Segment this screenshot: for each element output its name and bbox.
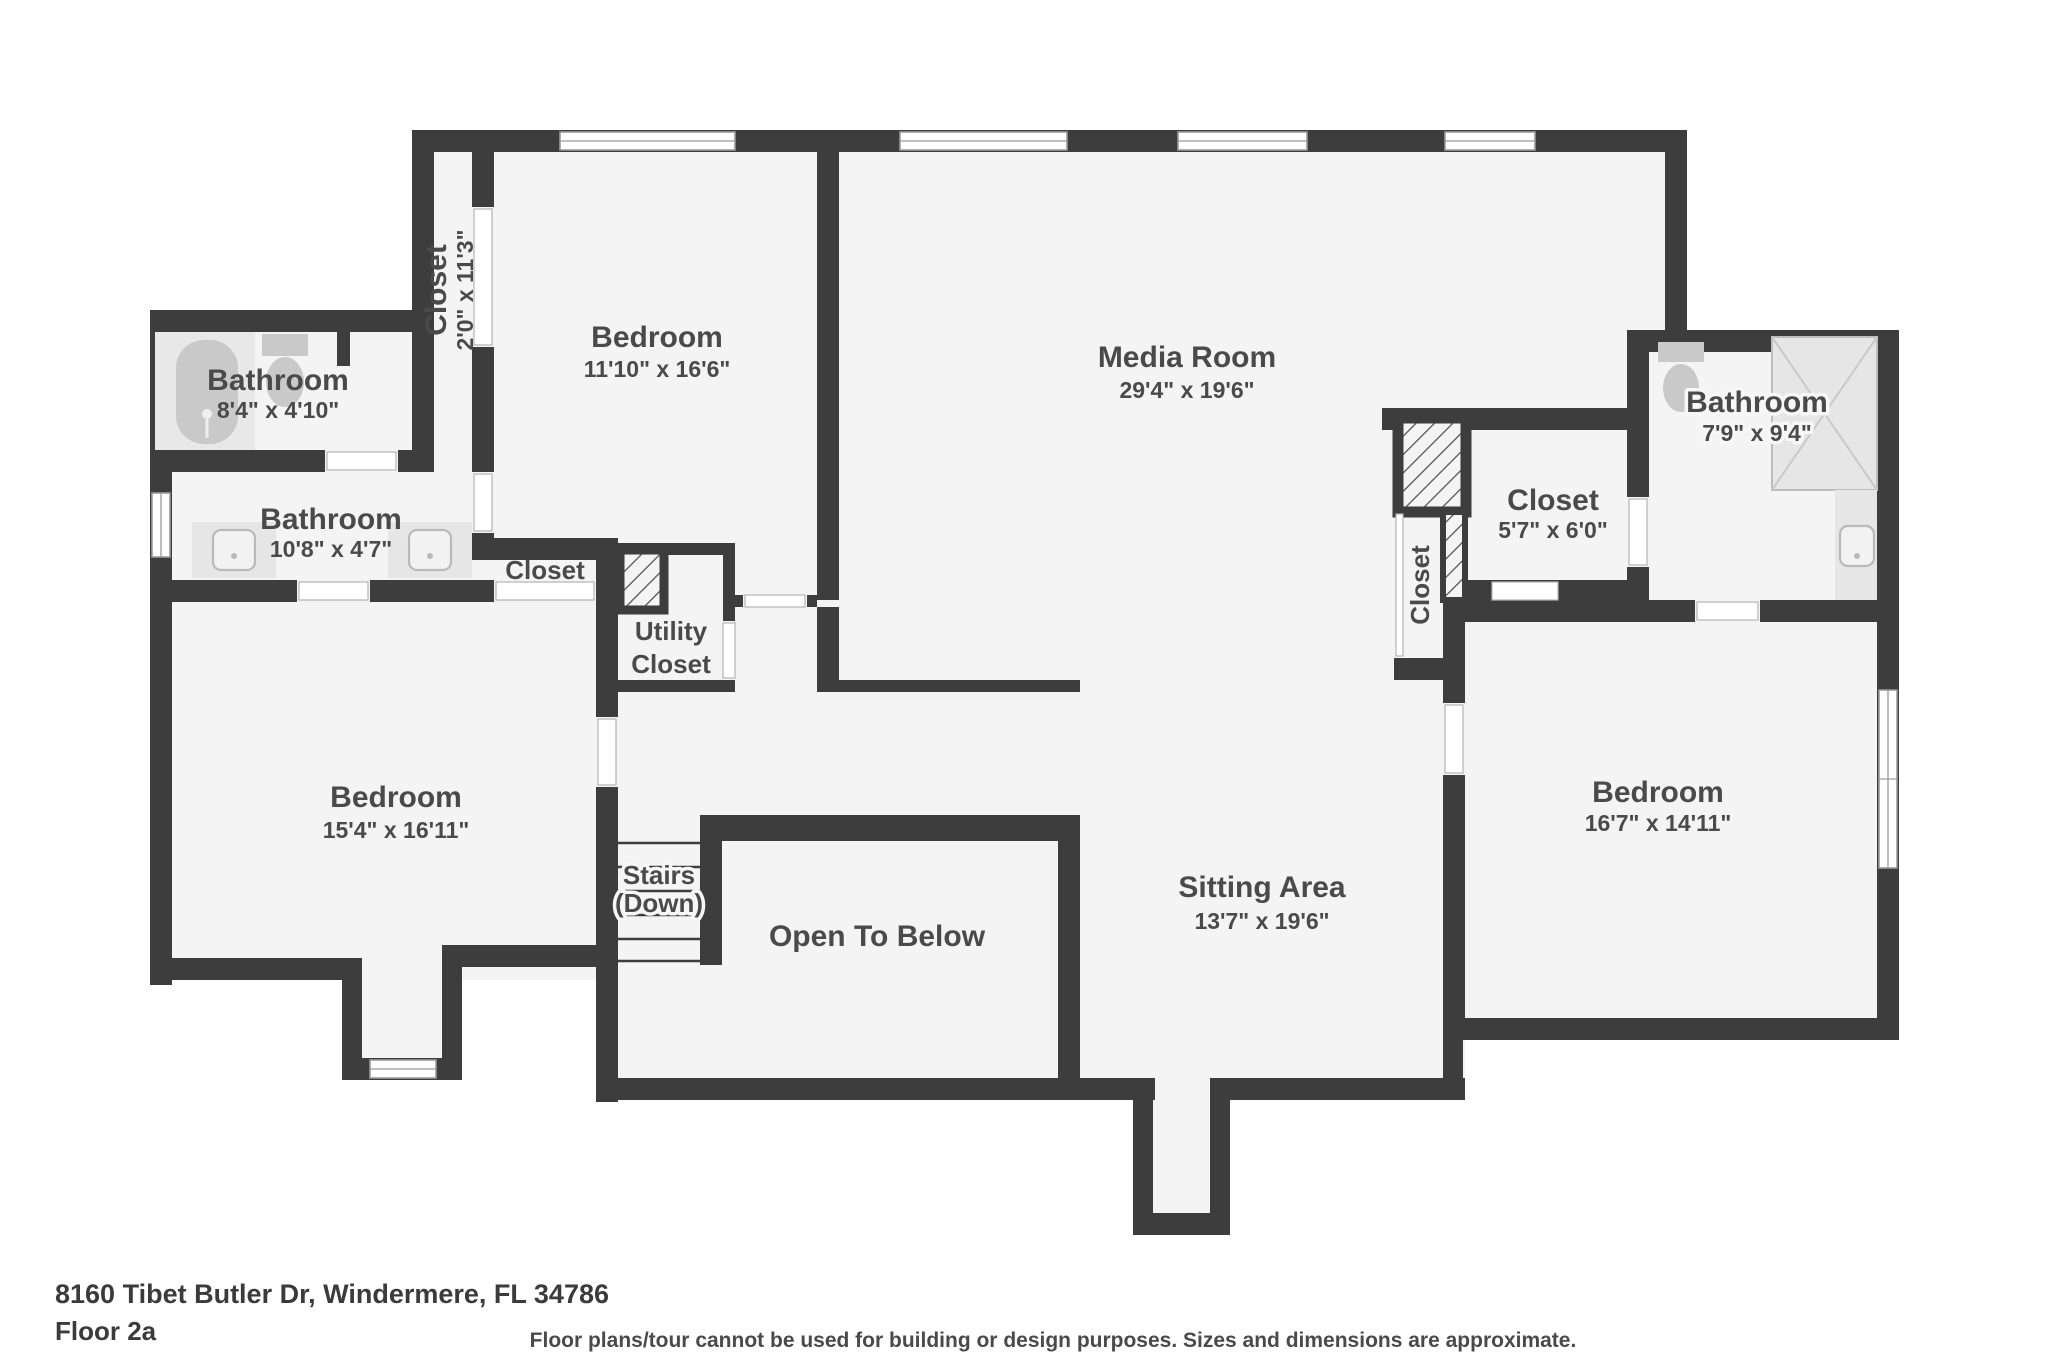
footer: 8160 Tibet Butler Dr, Windermere, FL 347… (55, 1279, 1576, 1352)
room-label-media-room: Media Room (1098, 341, 1276, 374)
chase-right-strip (1443, 512, 1465, 600)
tub-drain-icon (202, 409, 212, 419)
toilet-tank-icon (262, 334, 308, 356)
room-label-closet-small: Closet (505, 555, 585, 585)
toilet-tank-icon-right (1658, 342, 1704, 362)
room-dims-bedroom-top: 11'10" x 16'6" (584, 356, 731, 382)
footer-address: 8160 Tibet Butler Dr, Windermere, FL 347… (55, 1279, 609, 1309)
room-dims-bedroom-left: 15'4" x 16'11" (323, 817, 470, 843)
room-label-bathroom-top-left: Bathroom (207, 364, 349, 397)
sink-icon-2 (409, 530, 451, 570)
sink-icon-right (1840, 526, 1874, 566)
chase-utility (620, 550, 664, 610)
room-label-bathroom-left: Bathroom (260, 503, 402, 536)
room-dims-bathroom-top-left: 8'4" x 4'10" (217, 397, 339, 423)
floor-plan-canvas: Bathroom 8'4" x 4'10" Closet 2'0" x 11'3… (0, 0, 2048, 1365)
room-dims-sitting-area: 13'7" x 19'6" (1194, 908, 1329, 934)
room-label-open-to-below: Open To Below (769, 920, 986, 953)
chase-right-large (1398, 418, 1466, 512)
room-label-stairs-line1: Stairs (623, 860, 695, 890)
room-label-bedroom-right: Bedroom (1592, 776, 1724, 809)
room-label-closet-vertical: Closet (1405, 545, 1435, 625)
room-label-utility-line2: Closet (631, 649, 711, 679)
room-label-closet-right: Closet (1507, 484, 1599, 517)
room-dims-closet-right: 5'7" x 6'0" (1498, 517, 1608, 543)
sink-icon-1 (213, 530, 255, 570)
room-label-sitting-area: Sitting Area (1178, 871, 1346, 904)
room-dims-bedroom-right: 16'7" x 14'11" (1585, 810, 1732, 836)
footer-disclaimer: Floor plans/tour cannot be used for buil… (530, 1329, 1577, 1352)
room-label-bedroom-top: Bedroom (591, 321, 723, 354)
room-label-closet-tall: Closet (420, 244, 453, 336)
floor-plan-page: Bathroom 8'4" x 4'10" Closet 2'0" x 11'3… (0, 0, 2048, 1365)
room-dims-closet-tall: 2'0" x 11'3" (452, 229, 478, 350)
footer-floor-label: Floor 2a (55, 1316, 157, 1346)
room-label-stairs-line2: (Down) (615, 888, 703, 918)
room-label-bathroom-right: Bathroom (1686, 386, 1828, 419)
room-label-bedroom-left: Bedroom (330, 781, 462, 814)
room-label-utility-line1: Utility (635, 616, 708, 646)
room-dims-bathroom-left: 10'8" x 4'7" (270, 536, 392, 562)
room-dims-bathroom-right: 7'9" x 9'4" (1702, 420, 1812, 446)
room-dims-media-room: 29'4" x 19'6" (1119, 377, 1254, 403)
